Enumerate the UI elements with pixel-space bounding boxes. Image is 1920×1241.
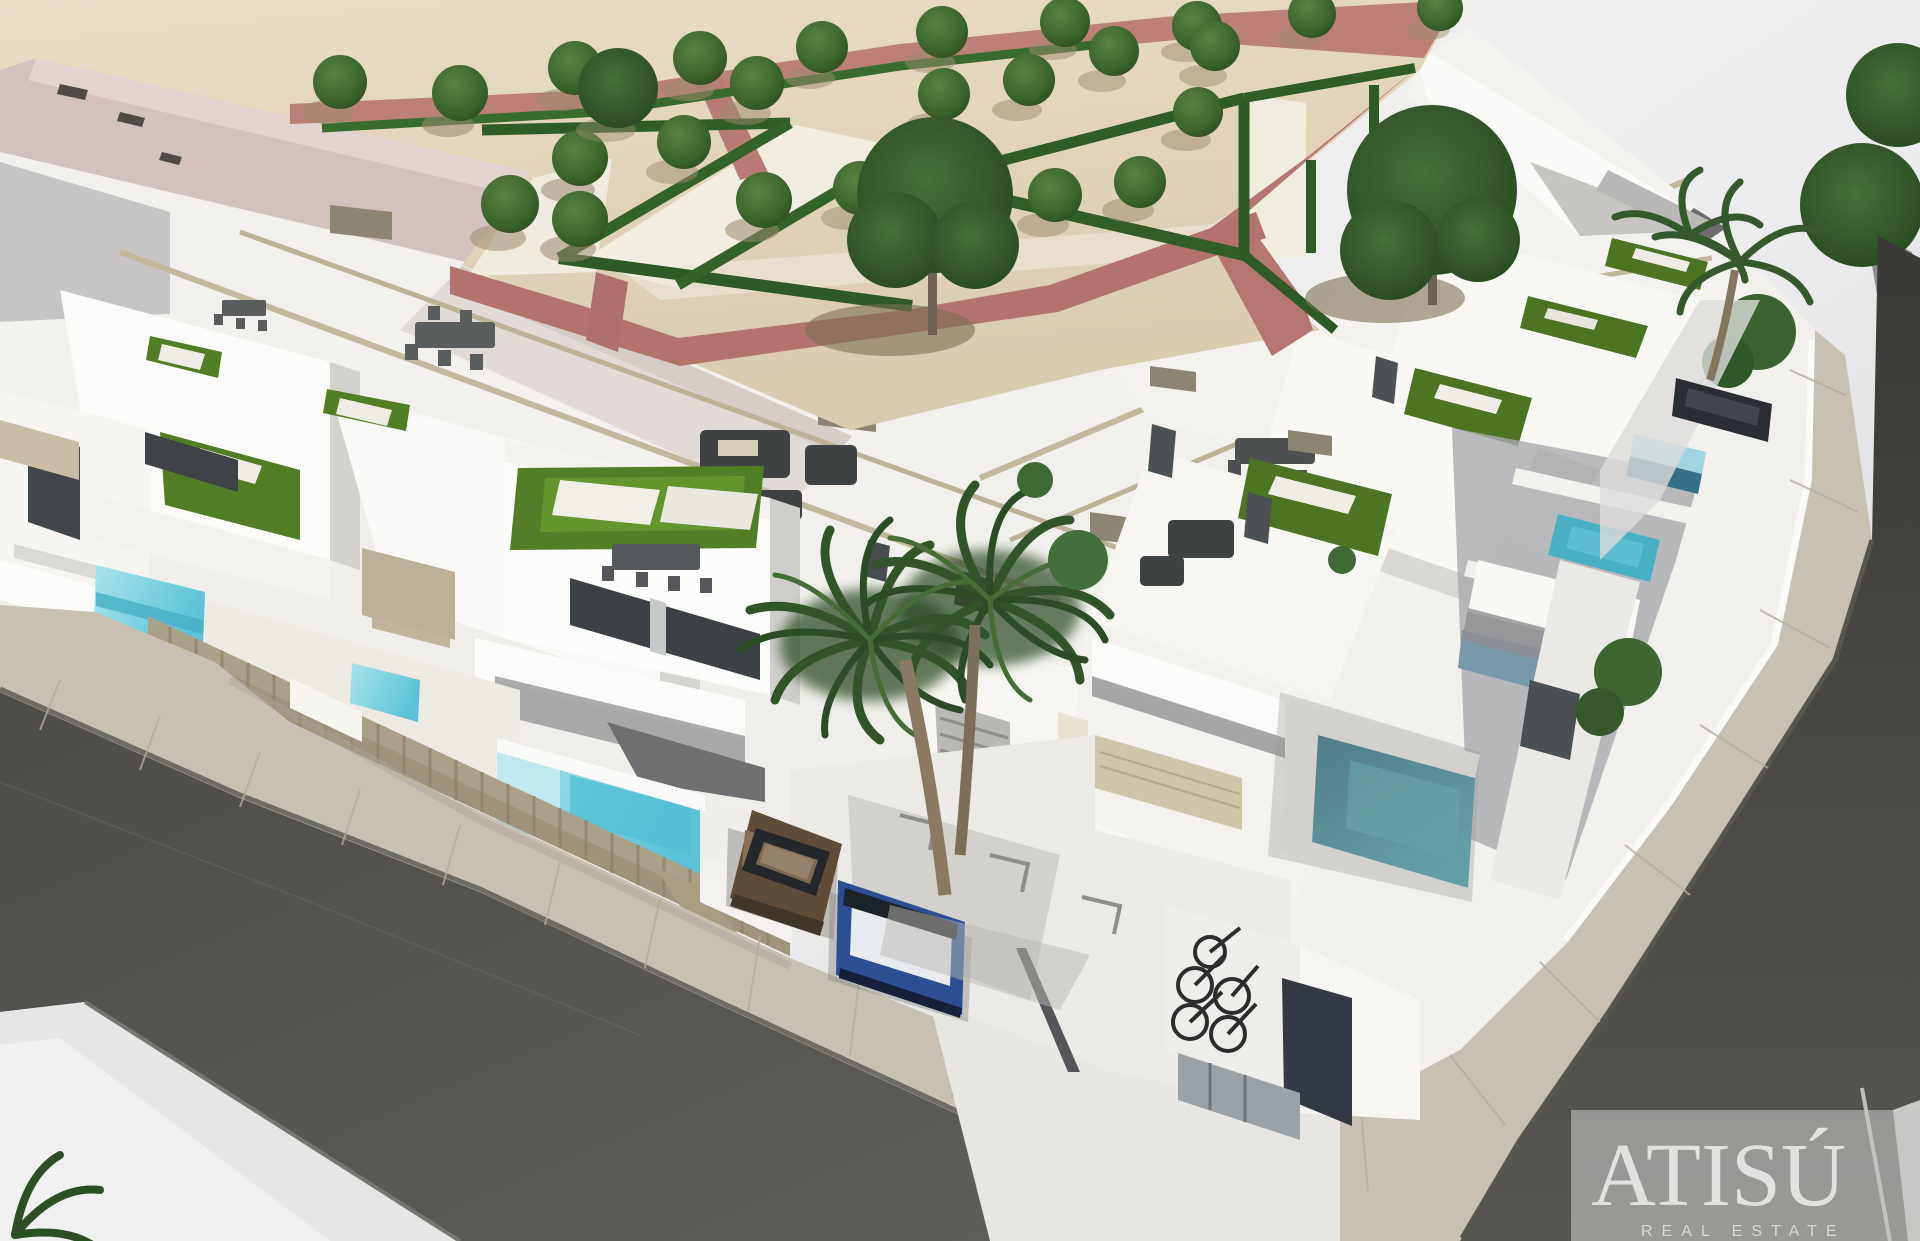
svg-text:ATISÚ: ATISÚ [1591, 1126, 1846, 1225]
svg-text:REAL ESTATE: REAL ESTATE [1641, 1223, 1846, 1240]
